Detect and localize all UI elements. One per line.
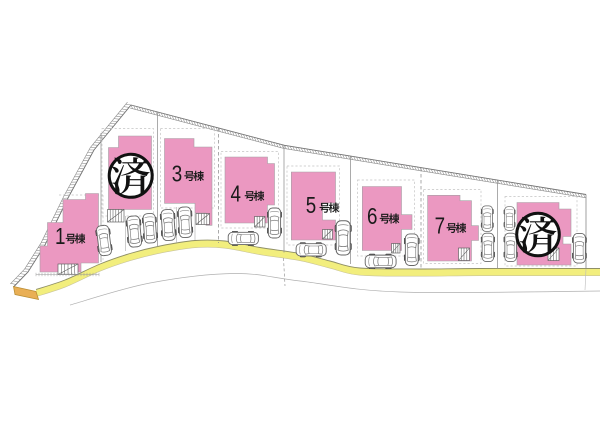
svg-text:4: 4 xyxy=(231,180,242,207)
svg-text:3: 3 xyxy=(172,160,182,187)
svg-text:1: 1 xyxy=(55,223,65,250)
svg-text:7: 7 xyxy=(435,212,445,239)
svg-text:5: 5 xyxy=(306,192,316,219)
svg-text:6: 6 xyxy=(367,203,377,230)
